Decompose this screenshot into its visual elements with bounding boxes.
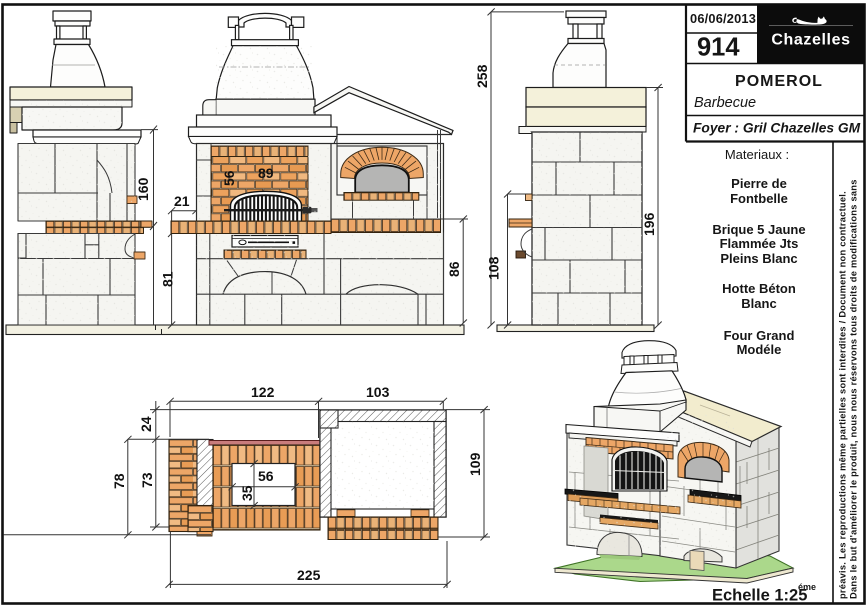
svg-text:Foyer : Gril Chazelles GM: Foyer : Gril Chazelles GM <box>693 121 861 136</box>
svg-text:81: 81 <box>160 271 176 287</box>
svg-text:109: 109 <box>467 452 483 476</box>
svg-text:122: 122 <box>251 384 275 400</box>
svg-text:Modéle: Modéle <box>737 342 782 357</box>
svg-text:225: 225 <box>297 567 321 583</box>
svg-text:914: 914 <box>697 34 740 62</box>
svg-text:Fontbelle: Fontbelle <box>730 191 788 206</box>
svg-text:89: 89 <box>258 165 274 181</box>
svg-text:Barbecue: Barbecue <box>694 95 756 111</box>
svg-text:Pleins Blanc: Pleins Blanc <box>720 251 797 266</box>
svg-text:préavis. Les reproductions mêm: préavis. Les reproductions même partiell… <box>838 191 848 599</box>
svg-text:108: 108 <box>486 256 502 280</box>
svg-text:Flammée Jts: Flammée Jts <box>720 236 799 251</box>
svg-text:196: 196 <box>641 212 657 236</box>
svg-text:73: 73 <box>139 472 155 488</box>
svg-text:21: 21 <box>174 193 190 209</box>
svg-text:56: 56 <box>258 468 274 484</box>
svg-text:06/06/2013: 06/06/2013 <box>690 11 756 26</box>
svg-text:86: 86 <box>446 261 462 277</box>
svg-text:24: 24 <box>138 416 154 432</box>
svg-text:éme: éme <box>798 582 816 592</box>
svg-text:Dans le but d'améliorer le pro: Dans le but d'améliorer le produit, nous… <box>849 179 859 599</box>
svg-text:Materiaux :: Materiaux : <box>725 147 789 162</box>
svg-text:POMEROL: POMEROL <box>735 73 823 90</box>
svg-text:78: 78 <box>111 473 127 489</box>
svg-text:Chazelles: Chazelles <box>771 32 850 49</box>
svg-text:Brique 5 Jaune: Brique 5 Jaune <box>712 222 805 237</box>
svg-text:Blanc: Blanc <box>741 296 776 311</box>
svg-text:56: 56 <box>221 170 237 186</box>
svg-text:258: 258 <box>474 64 490 88</box>
svg-text:35: 35 <box>239 485 255 501</box>
svg-text:Hotte Béton: Hotte Béton <box>722 281 796 296</box>
svg-text:160: 160 <box>135 177 151 201</box>
svg-text:103: 103 <box>366 384 390 400</box>
svg-text:Pierre de: Pierre de <box>731 176 787 191</box>
svg-text:Four Grand: Four Grand <box>724 328 795 343</box>
svg-text:Echelle 1:25: Echelle 1:25 <box>712 587 807 605</box>
